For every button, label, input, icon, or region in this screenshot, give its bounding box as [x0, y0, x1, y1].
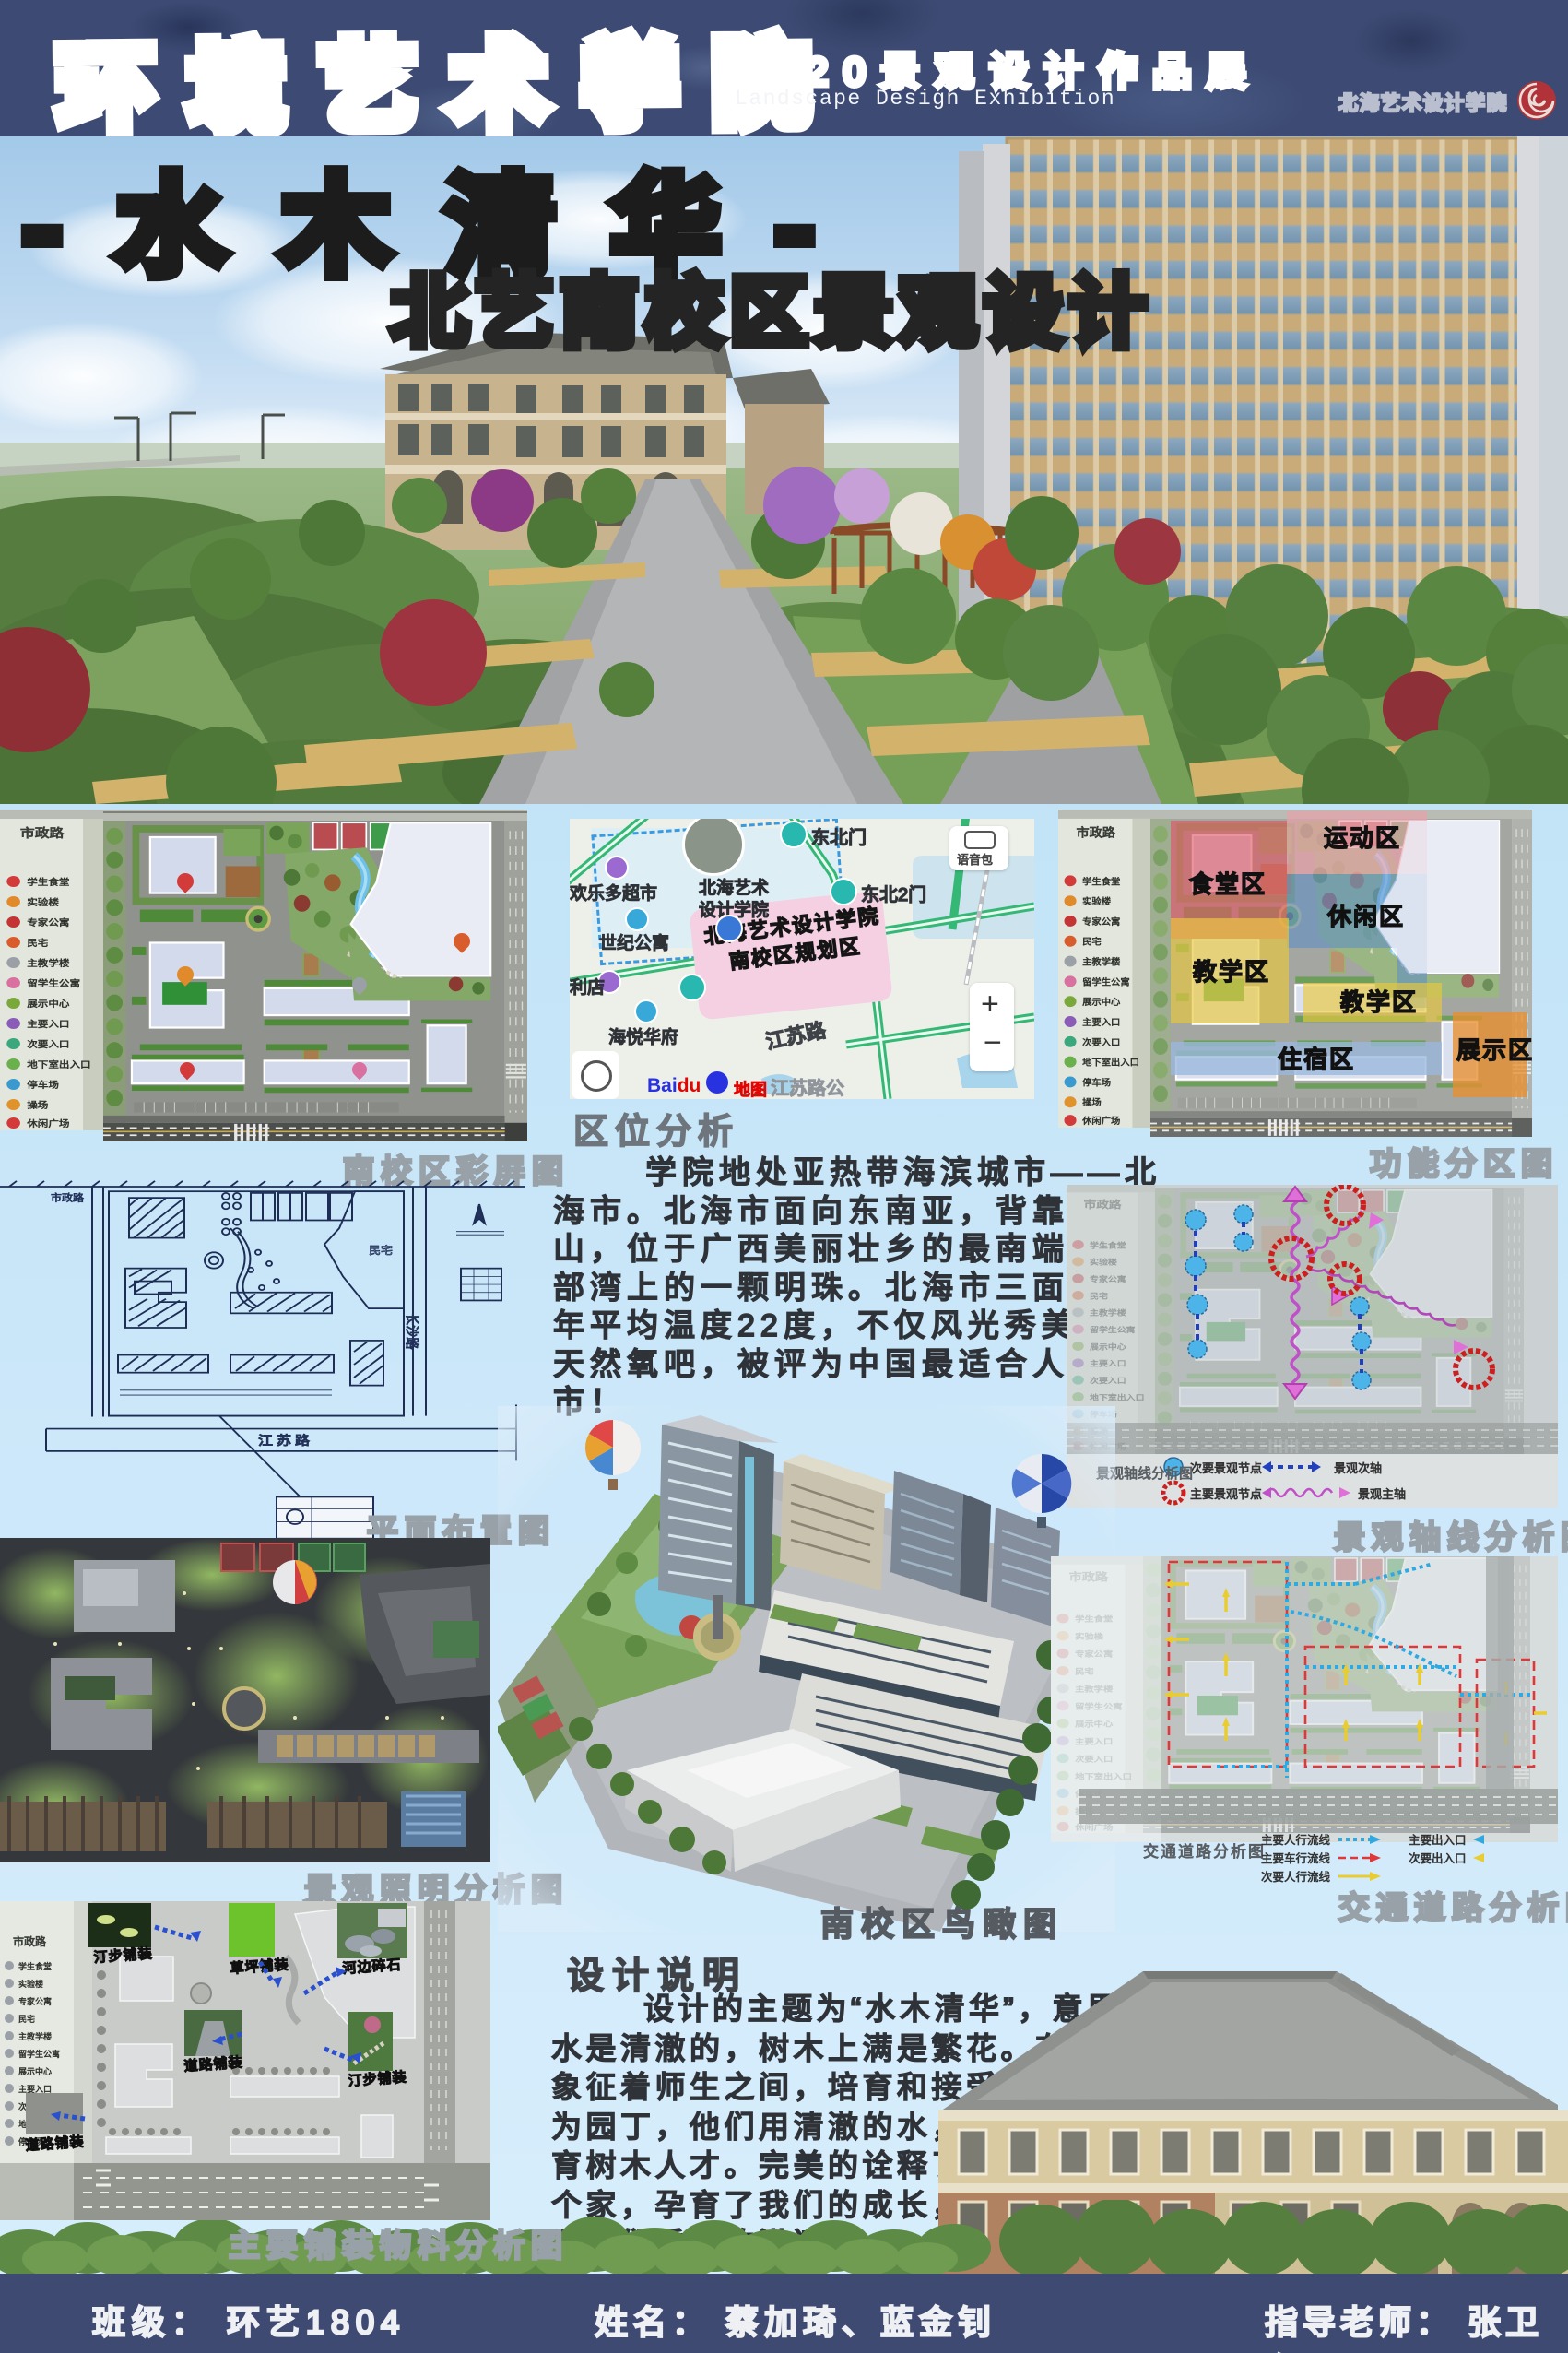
svg-text:展示区: 展示区	[1456, 1036, 1532, 1064]
svg-text:休闲区: 休闲区	[1327, 903, 1405, 930]
svg-text:景观主轴: 景观主轴	[1358, 1487, 1406, 1501]
svg-text:教学区: 教学区	[1340, 988, 1418, 1016]
svg-text:展示中心: 展示中心	[18, 2066, 52, 2076]
svg-text:学生食堂: 学生食堂	[18, 1961, 52, 1971]
svg-text:运动区: 运动区	[1324, 824, 1401, 852]
svg-text:长沙路: 长沙路	[405, 1313, 420, 1349]
svg-text:主要人行流线: 主要人行流线	[1261, 1834, 1331, 1847]
svg-text:市政路: 市政路	[13, 1934, 46, 1948]
svg-text:民宅: 民宅	[369, 1244, 393, 1257]
svg-text:次要人行流线: 次要人行流线	[1261, 1871, 1331, 1884]
svg-text:江苏路: 江苏路	[258, 1434, 313, 1448]
svg-text:交通道路分析图: 交通道路分析图	[1143, 1843, 1266, 1861]
svg-text:民宅: 民宅	[18, 2014, 35, 2024]
svg-text:教学区: 教学区	[1193, 958, 1270, 986]
svg-text:主要景观节点: 主要景观节点	[1190, 1487, 1262, 1501]
svg-text:次要景观节点: 次要景观节点	[1190, 1461, 1262, 1475]
svg-text:专家公寓: 专家公寓	[18, 1996, 52, 2006]
svg-text:次要出入口: 次要出入口	[1409, 1852, 1467, 1865]
svg-text:留学生公寓: 留学生公寓	[18, 2049, 60, 2059]
svg-text:主要出入口: 主要出入口	[1409, 1834, 1467, 1847]
svg-text:主要车行流线: 主要车行流线	[1261, 1851, 1331, 1865]
svg-text:景观次轴: 景观次轴	[1334, 1461, 1382, 1475]
svg-text:市政路: 市政路	[51, 1191, 84, 1203]
svg-text:主教学楼: 主教学楼	[18, 2031, 52, 2041]
svg-text:主要入口: 主要入口	[18, 2084, 52, 2094]
svg-text:食堂区: 食堂区	[1189, 870, 1267, 898]
svg-text:实验楼: 实验楼	[18, 1979, 43, 1989]
svg-text:住宿区: 住宿区	[1278, 1046, 1355, 1073]
